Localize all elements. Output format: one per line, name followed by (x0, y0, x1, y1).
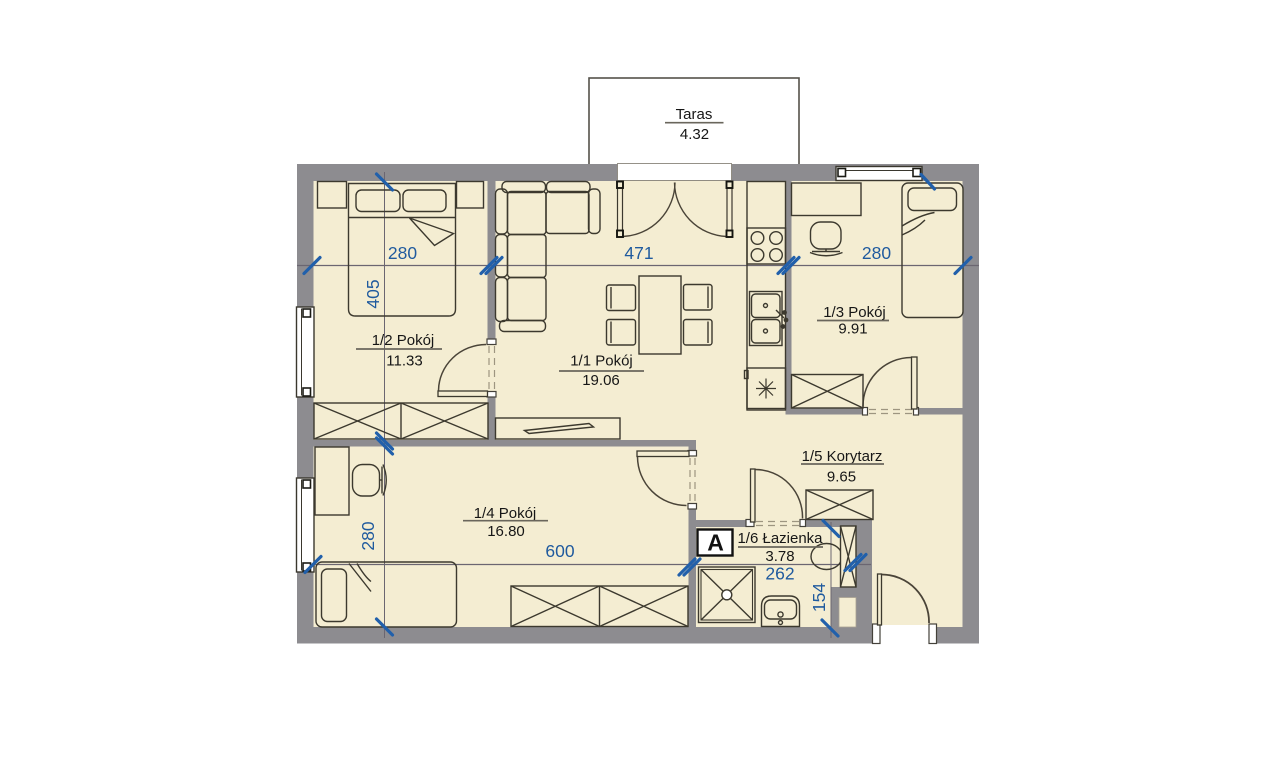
svg-text:9.91: 9.91 (838, 321, 867, 338)
svg-text:A: A (707, 530, 724, 556)
svg-text:280: 280 (388, 243, 417, 263)
svg-text:Taras: Taras (676, 106, 713, 123)
svg-text:280: 280 (862, 243, 891, 263)
svg-text:600: 600 (545, 541, 574, 561)
svg-text:19.06: 19.06 (582, 372, 620, 389)
svg-text:1/3 Pokój: 1/3 Pokój (823, 304, 886, 321)
svg-text:4.32: 4.32 (680, 126, 709, 143)
svg-text:9.65: 9.65 (827, 469, 856, 486)
svg-text:280: 280 (358, 521, 378, 550)
svg-text:3.78: 3.78 (765, 548, 794, 565)
svg-text:471: 471 (624, 243, 653, 263)
svg-text:1/2 Pokój: 1/2 Pokój (372, 332, 435, 349)
svg-text:262: 262 (765, 564, 794, 584)
svg-text:1/5 Korytarz: 1/5 Korytarz (802, 448, 883, 465)
svg-text:1/6 Łazienka: 1/6 Łazienka (737, 530, 823, 547)
svg-text:1/4 Pokój: 1/4 Pokój (474, 505, 537, 522)
svg-text:11.33: 11.33 (386, 353, 422, 370)
svg-text:1/1 Pokój: 1/1 Pokój (570, 353, 633, 370)
svg-text:154: 154 (809, 583, 829, 612)
svg-text:16.80: 16.80 (487, 523, 525, 540)
svg-text:405: 405 (363, 279, 383, 308)
